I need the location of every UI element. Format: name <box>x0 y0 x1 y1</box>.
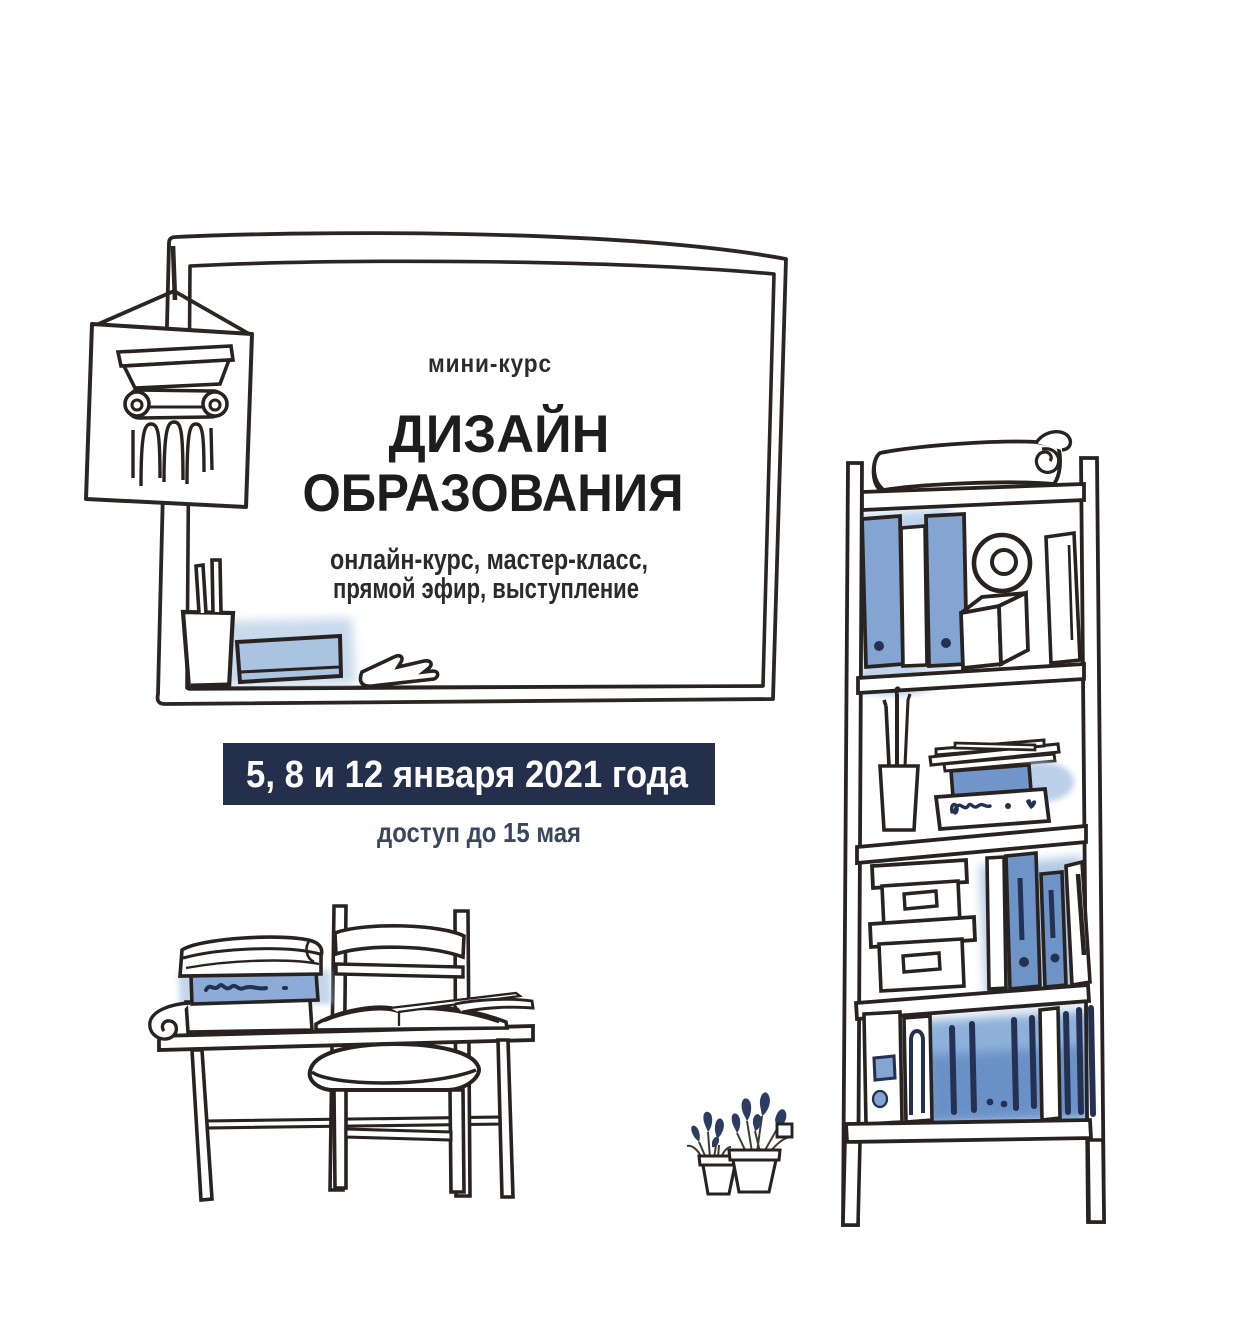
svg-text:ДИЗАЙН: ДИЗАЙН <box>389 403 610 464</box>
svg-text:5, 8 и 12 января 2021 года: 5, 8 и 12 января 2021 года <box>246 754 689 796</box>
svg-text:прямой эфир, выступление: прямой эфир, выступление <box>333 573 639 605</box>
svg-text:мини-курс: мини-курс <box>428 350 552 378</box>
svg-text:доступ до 15 мая: доступ до 15 мая <box>377 817 581 848</box>
svg-text:ОБРАЗОВАНИЯ: ОБРАЗОВАНИЯ <box>303 464 684 523</box>
svg-text:онлайн-курс, мастер-класс,: онлайн-курс, мастер-класс, <box>330 544 648 576</box>
